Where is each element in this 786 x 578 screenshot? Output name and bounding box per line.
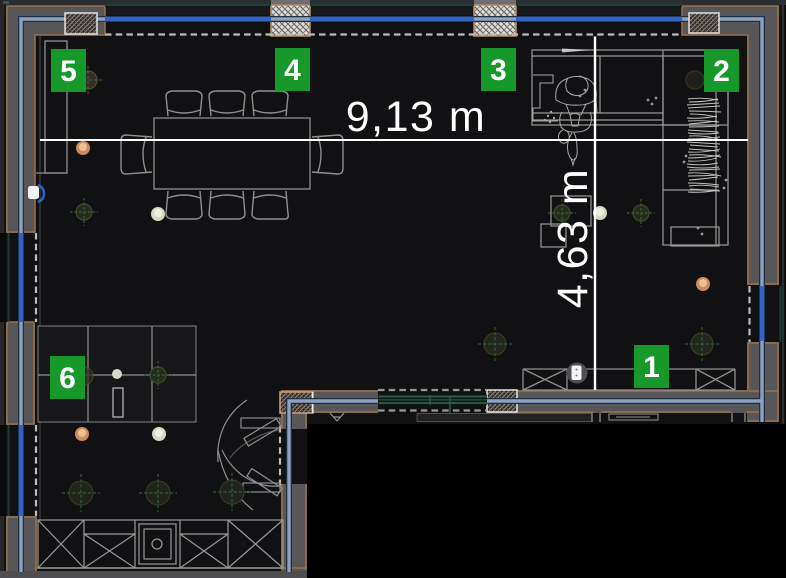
svg-text:1: 1 [643, 351, 660, 384]
svg-text:4,63 m: 4,63 m [549, 168, 597, 308]
svg-text:3: 3 [490, 54, 507, 87]
svg-text:9,13 m: 9,13 m [346, 93, 486, 141]
svg-text:5: 5 [60, 55, 77, 88]
svg-text:6: 6 [59, 362, 76, 395]
svg-text:2: 2 [713, 55, 730, 88]
svg-text:4: 4 [284, 54, 301, 87]
